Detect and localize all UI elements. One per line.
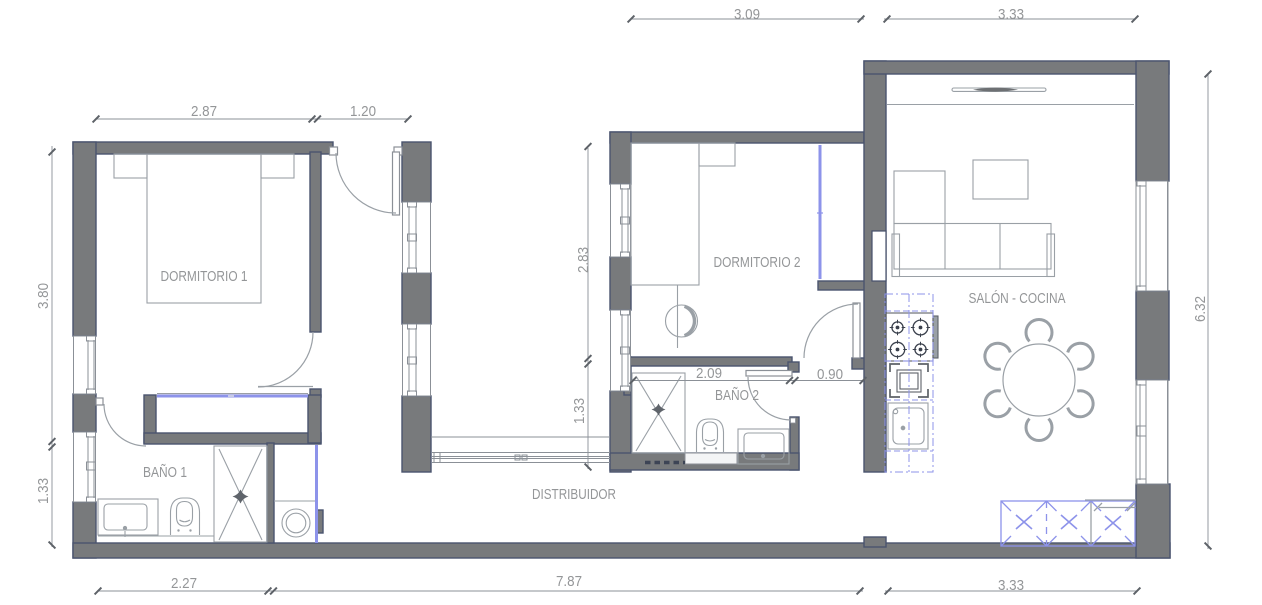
svg-text:BAÑO 1: BAÑO 1: [143, 464, 187, 481]
svg-text:2.27: 2.27: [171, 576, 197, 592]
svg-text:1.33: 1.33: [36, 478, 52, 504]
svg-text:3.33: 3.33: [998, 7, 1024, 23]
svg-text:SALÓN - COCINA: SALÓN - COCINA: [969, 290, 1066, 307]
svg-text:7.87: 7.87: [556, 574, 582, 590]
svg-text:DORMITORIO 2: DORMITORIO 2: [714, 254, 801, 271]
svg-text:BAÑO 2: BAÑO 2: [715, 387, 759, 404]
svg-text:6.32: 6.32: [1193, 296, 1209, 322]
svg-text:2.83: 2.83: [576, 247, 592, 273]
svg-text:3.80: 3.80: [36, 283, 52, 309]
svg-text:2.09: 2.09: [696, 366, 722, 382]
svg-text:2.87: 2.87: [191, 104, 217, 120]
svg-text:1.33: 1.33: [572, 398, 588, 424]
svg-text:DISTRIBUIDOR: DISTRIBUIDOR: [532, 486, 616, 503]
svg-text:1.20: 1.20: [350, 104, 376, 120]
svg-text:3.09: 3.09: [734, 7, 760, 23]
svg-text:DORMITORIO 1: DORMITORIO 1: [161, 268, 248, 285]
svg-text:0.90: 0.90: [817, 367, 843, 383]
svg-text:3.33: 3.33: [998, 578, 1024, 594]
